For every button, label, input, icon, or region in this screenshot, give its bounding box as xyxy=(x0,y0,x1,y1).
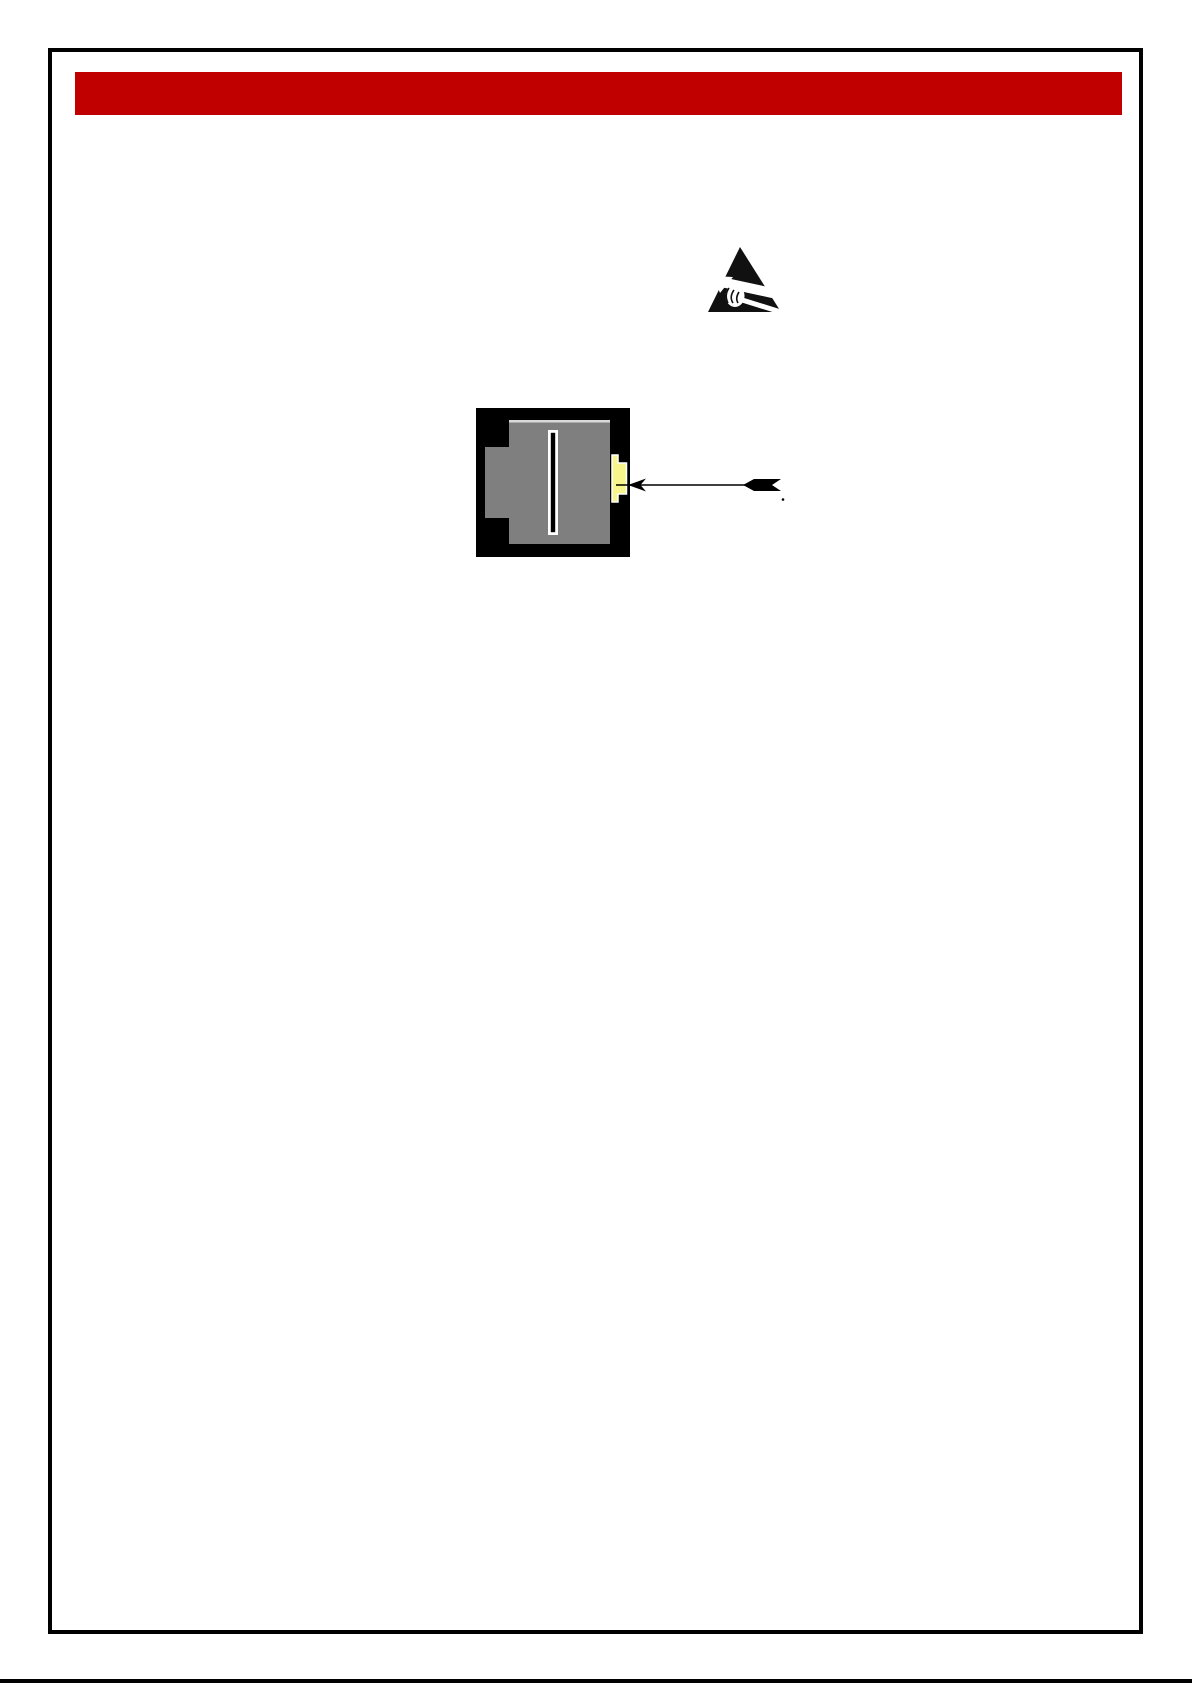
connector-slot xyxy=(551,433,555,532)
document-page xyxy=(0,0,1192,1685)
callout-arrow-icon xyxy=(610,466,795,508)
connector-housing-highlight xyxy=(509,420,610,423)
stray-dot xyxy=(782,498,785,501)
esd-warning-icon xyxy=(708,247,783,315)
connector-figure xyxy=(476,408,630,557)
page-border xyxy=(48,48,1143,1634)
connector-housing-extension xyxy=(485,447,509,518)
section-header-bar xyxy=(75,72,1122,115)
callout-arrow-fletching xyxy=(743,479,781,491)
bottom-page-rule xyxy=(0,1679,1192,1683)
connector-housing xyxy=(509,420,610,544)
